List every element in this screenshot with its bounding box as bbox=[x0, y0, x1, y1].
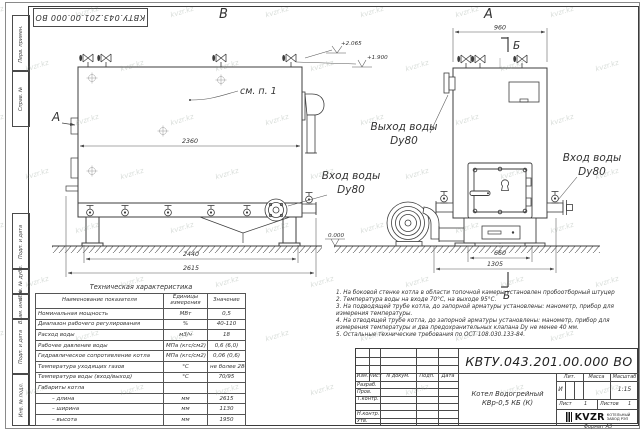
tech-table: Наименование показателя Единицы измерени… bbox=[35, 293, 246, 426]
tb-col-podp: Подп. bbox=[416, 373, 438, 381]
row-value: 70/95 bbox=[208, 372, 246, 383]
inlet-left-label-2: Dy80 bbox=[337, 184, 365, 196]
row-name: – высота bbox=[36, 414, 164, 425]
elevation-top: +2.065 bbox=[341, 41, 362, 47]
tb-row-tkontr: Т.контр. bbox=[357, 396, 380, 402]
row-name: – ширина bbox=[36, 404, 164, 415]
row-value bbox=[208, 383, 246, 394]
row-value: 0,5 bbox=[208, 309, 246, 320]
kvzr-logo-text: KVZR bbox=[575, 412, 605, 423]
tb-doc-number: КВТУ.043.201.00.000 ВО bbox=[459, 349, 639, 373]
company-name: КОТЕЛЬНЫЙ ЗАВОД РЭП bbox=[607, 413, 631, 421]
row-units bbox=[164, 383, 208, 394]
row-value: не более 280 bbox=[208, 361, 246, 372]
side-view-top-valves bbox=[79, 54, 296, 67]
row-value: 1130 bbox=[208, 404, 246, 415]
row-units: м3/ч bbox=[164, 330, 208, 341]
table-row: – длинамм2615 bbox=[36, 393, 246, 404]
technical-notes: 1. На боковой стенке котла в области топ… bbox=[336, 290, 637, 340]
dim-1305: 1305 bbox=[487, 261, 503, 268]
row-units: % bbox=[164, 319, 208, 330]
row-units: МВт bbox=[164, 309, 208, 320]
row-value: 2615 bbox=[208, 393, 246, 404]
tb-col-izm: Изм. bbox=[356, 373, 369, 381]
dim-2360: 2360 bbox=[182, 138, 198, 145]
view-b-label: В bbox=[219, 7, 228, 22]
tech-table-title: Техническая характеристика bbox=[35, 283, 247, 291]
dim-660: 660 bbox=[494, 250, 506, 257]
table-row: Гидравлическое сопротивление котлаМПа (к… bbox=[36, 351, 246, 362]
row-value: 0,6 (6,0) bbox=[208, 340, 246, 351]
tb-mass-header: Масса bbox=[583, 374, 610, 380]
tb-col-docnum: N докум. bbox=[380, 373, 416, 381]
company-logo: KVZR КОТЕЛЬНЫЙ ЗАВОД РЭП bbox=[557, 409, 639, 425]
row-units: °С bbox=[164, 372, 208, 383]
section-b-top-label: Б bbox=[513, 40, 520, 52]
tb-scale-header: Масштаб bbox=[610, 374, 639, 380]
view-a-label: А bbox=[483, 7, 493, 22]
row-units: мм bbox=[164, 414, 208, 425]
tb-sheet-label: Лист bbox=[559, 401, 579, 407]
table-row: Температура уходящих газов°Сне более 280 bbox=[36, 361, 246, 372]
row-name: Расход воды bbox=[36, 330, 164, 341]
ground-line-right bbox=[334, 246, 600, 253]
note-4: 4. На отводящей трубе котла, до запорной… bbox=[336, 318, 637, 331]
view-arrow-a bbox=[62, 123, 75, 125]
tb-scale-value: 1:15 bbox=[610, 386, 639, 393]
tb-sheet-value: 1 bbox=[584, 401, 594, 407]
product-name-line2: КВр-0,5 КБ (К) bbox=[482, 399, 533, 408]
table-row: – ширинамм1130 bbox=[36, 404, 246, 415]
tb-col-list: Лист bbox=[369, 373, 380, 381]
tb-col-data: Дата bbox=[438, 373, 458, 381]
row-units: МПа (кгс/см2) bbox=[164, 351, 208, 362]
boiler-side-view bbox=[66, 67, 324, 246]
col-name: Наименование показателя bbox=[36, 294, 164, 309]
table-row: – высотамм1950 bbox=[36, 414, 246, 425]
note-5: 5. Остальные технические требования по О… bbox=[336, 332, 637, 339]
col-units: Единицы измерения bbox=[164, 294, 208, 309]
title-block: Изм. Лист N докум. Подп. Дата Разраб. Пр… bbox=[355, 348, 638, 424]
tb-row-razrab: Разраб. bbox=[357, 382, 380, 388]
view-arrow-a-label: А bbox=[51, 110, 60, 124]
blueprint-sheet: { "watermark": {"text": "kvzr.kz"}, "fra… bbox=[0, 0, 644, 430]
dim-960: 960 bbox=[494, 25, 506, 32]
tb-row-nkontr: Н.контр. bbox=[357, 411, 380, 417]
see-note-label: см. п. 1 bbox=[240, 86, 277, 97]
row-value: 18 bbox=[208, 330, 246, 341]
kvzr-logo-mark-icon bbox=[566, 412, 573, 422]
see-note-point bbox=[189, 99, 191, 101]
flue-outlet bbox=[302, 92, 324, 153]
row-name: Температура воды (вход/выход) bbox=[36, 372, 164, 383]
table-row: Диапазон рабочего регулирования%40-110 bbox=[36, 319, 246, 330]
elevation-zero: 0.000 bbox=[328, 233, 344, 239]
tb-lit-value: И bbox=[556, 386, 565, 393]
dim-2440: 2440 bbox=[183, 251, 199, 258]
note-2: 2. Температура воды на входе 70°С, на вы… bbox=[336, 297, 637, 304]
boiler-front-view bbox=[387, 58, 573, 252]
row-name: Рабочее давление воды bbox=[36, 340, 164, 351]
row-name: Гидравлическое сопротивление котла bbox=[36, 351, 164, 362]
table-row: Рабочее давление водыМПа (кгс/см2)0,6 (6… bbox=[36, 340, 246, 351]
inlet-right-leader bbox=[558, 177, 577, 200]
note-1: 1. На боковой стенке котла в области топ… bbox=[336, 290, 637, 297]
row-name: – длина bbox=[36, 393, 164, 404]
elevation-mid: +1.900 bbox=[367, 55, 388, 61]
row-value: 0,06 (0,6) bbox=[208, 351, 246, 362]
table-row: Габариты котла bbox=[36, 383, 246, 394]
dim-2615: 2615 bbox=[183, 265, 199, 272]
tb-lit-header: Лит. bbox=[556, 374, 583, 380]
company-name-line2: ЗАВОД РЭП bbox=[607, 417, 631, 421]
inlet-right-label-2: Dy80 bbox=[578, 166, 606, 178]
row-units: °С bbox=[164, 361, 208, 372]
tb-row-utv: Утв. bbox=[357, 418, 380, 424]
row-value: 1950 bbox=[208, 414, 246, 425]
tb-sheets-value: 1 bbox=[628, 401, 638, 407]
row-name: Номинальная мощность bbox=[36, 309, 164, 320]
note-3: 3. На подводящей трубе котла, до запорно… bbox=[336, 304, 637, 317]
row-units: мм bbox=[164, 404, 208, 415]
row-units: мм bbox=[164, 393, 208, 404]
inlet-left-label-1: Вход воды bbox=[322, 170, 381, 182]
furnace-door bbox=[468, 163, 532, 218]
table-row: Температура воды (вход/выход)°С70/95 bbox=[36, 372, 246, 383]
format-note: Формат А3 bbox=[560, 424, 636, 430]
tb-sheets-label: Листов bbox=[600, 401, 624, 407]
table-row: Номинальная мощностьМВт0,5 bbox=[36, 309, 246, 320]
outlet-label-1: Выход воды bbox=[371, 121, 438, 133]
row-value: 40-110 bbox=[208, 319, 246, 330]
row-name: Диапазон рабочего регулирования bbox=[36, 319, 164, 330]
row-units: МПа (кгс/см2) bbox=[164, 340, 208, 351]
row-name: Температура уходящих газов bbox=[36, 361, 164, 372]
ash-box bbox=[455, 218, 545, 246]
tech-characteristics: Техническая характеристика Наименование … bbox=[35, 283, 247, 426]
water-inlet-flange bbox=[265, 199, 287, 221]
table-header-row: Наименование показателя Единицы измерени… bbox=[36, 294, 246, 309]
tb-row-prov: Пров. bbox=[357, 389, 380, 395]
product-name-line1: Котел Водогрейный bbox=[471, 390, 543, 399]
tb-product-name: Котел Водогрейный КВр-0,5 КБ (К) bbox=[459, 373, 556, 425]
outlet-label-2: Dy80 bbox=[390, 135, 418, 147]
col-value: Значение bbox=[208, 294, 246, 309]
table-row: Расход водым3/ч18 bbox=[36, 330, 246, 341]
row-name: Габариты котла bbox=[36, 383, 164, 394]
inlet-right-label-1: Вход воды bbox=[563, 152, 622, 164]
